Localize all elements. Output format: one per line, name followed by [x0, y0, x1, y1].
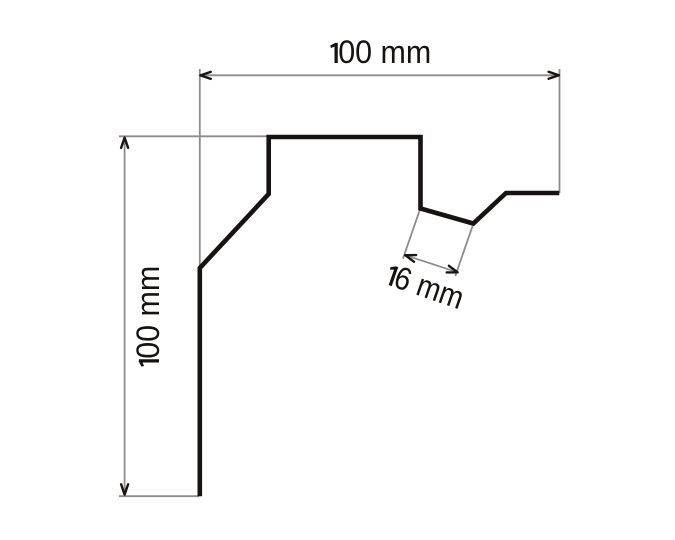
svg-text:00 mm: 00 mm	[338, 34, 431, 70]
svg-text:00 mm: 00 mm	[130, 266, 166, 359]
svg-text:6 mm: 6 mm	[390, 259, 469, 316]
